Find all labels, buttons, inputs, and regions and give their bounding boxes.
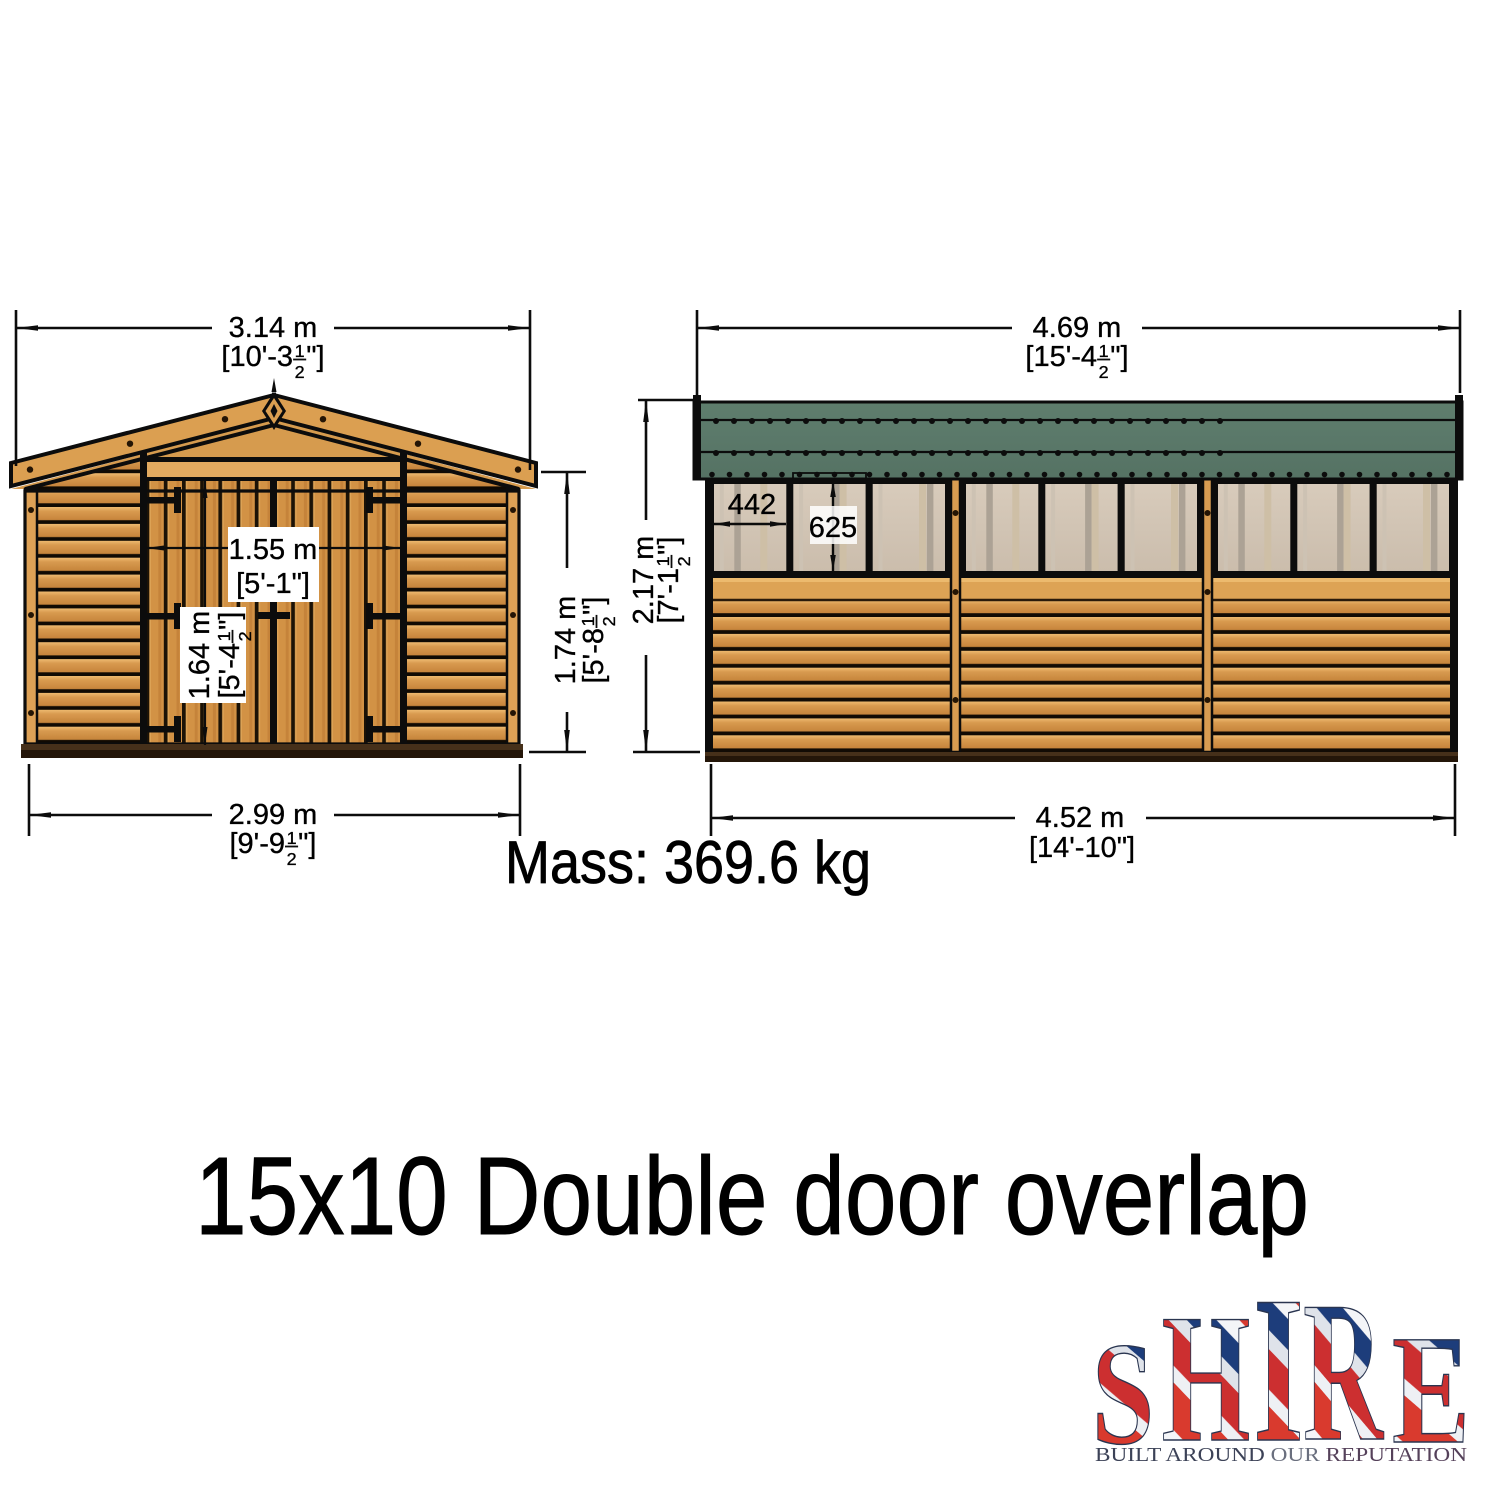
- svg-text:"]: "]: [653, 537, 685, 555]
- svg-text:2.99 m: 2.99 m: [229, 799, 318, 831]
- svg-text:4.69 m: 4.69 m: [1033, 312, 1122, 344]
- svg-text:[5'-1"]: [5'-1"]: [236, 568, 310, 600]
- svg-text:[14'-10"]: [14'-10"]: [1029, 832, 1135, 864]
- svg-text:2: 2: [1099, 362, 1109, 382]
- svg-text:1: 1: [295, 341, 305, 361]
- svg-text:Mass: 369.6 kg: Mass: 369.6 kg: [505, 829, 871, 896]
- svg-text:2: 2: [235, 631, 255, 641]
- svg-text:1.55 m: 1.55 m: [229, 534, 318, 566]
- svg-text:BUILT AROUND OUR REPUTATION: BUILT AROUND OUR REPUTATION: [1095, 1444, 1467, 1466]
- svg-text:2: 2: [674, 556, 694, 566]
- svg-text:1: 1: [1099, 341, 1109, 361]
- svg-text:"]: "]: [578, 597, 610, 615]
- svg-text:2: 2: [287, 849, 297, 869]
- svg-text:15x10 Double door overlap: 15x10 Double door overlap: [195, 1135, 1309, 1258]
- svg-text:[10'-3: [10'-3: [221, 341, 293, 373]
- svg-text:2: 2: [295, 362, 305, 382]
- svg-text:3.14 m: 3.14 m: [229, 312, 318, 344]
- svg-text:"]: "]: [306, 341, 324, 373]
- svg-text:2: 2: [599, 616, 619, 626]
- svg-text:[5'-8: [5'-8: [578, 628, 610, 684]
- svg-text:[5'-4: [5'-4: [214, 643, 246, 699]
- svg-text:"]: "]: [1110, 341, 1128, 373]
- svg-text:442: 442: [728, 489, 776, 521]
- svg-text:1: 1: [653, 556, 673, 566]
- svg-text:1.64 m: 1.64 m: [184, 611, 216, 700]
- svg-text:1: 1: [287, 828, 297, 848]
- svg-text:1: 1: [214, 631, 234, 641]
- svg-text:1: 1: [578, 616, 598, 626]
- svg-text:625: 625: [809, 512, 857, 544]
- svg-text:4.52 m: 4.52 m: [1036, 802, 1125, 834]
- svg-text:[15'-4: [15'-4: [1025, 341, 1097, 373]
- svg-text:"]: "]: [298, 828, 316, 860]
- svg-text:[9'-9: [9'-9: [230, 828, 286, 860]
- svg-text:[7'-1: [7'-1: [653, 568, 685, 624]
- svg-text:"]: "]: [214, 612, 246, 630]
